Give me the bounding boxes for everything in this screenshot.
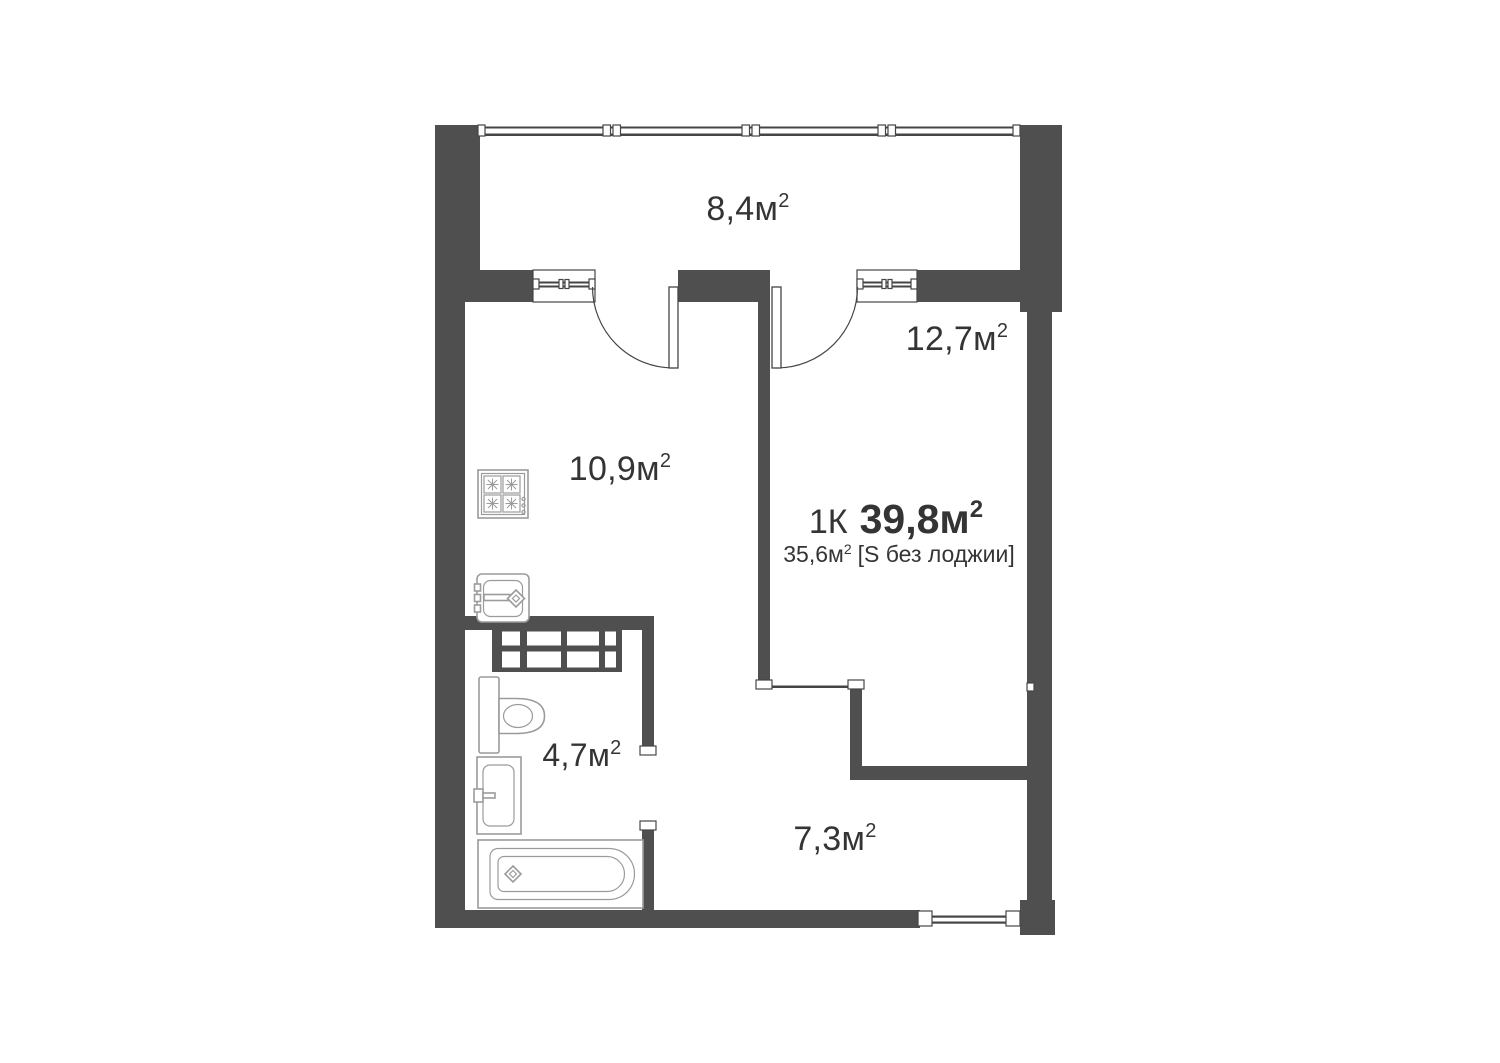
balcony-window-right: [857, 270, 917, 302]
toilet-icon: [479, 677, 545, 753]
room-label-hallway: 7,3м2: [793, 820, 876, 858]
balcony-door-left: [593, 287, 679, 368]
entrance-door: [918, 911, 1020, 926]
floor-plan-page: 8,4м2 12,7м2 10,9м2 4,7м2 7,3м2 1К39,8м2…: [0, 0, 1500, 1063]
door-swing-icon: [777, 287, 858, 368]
bathroom-door-opening: [640, 746, 656, 830]
door-swing-icon: [593, 287, 674, 368]
unit-subtitle: 35,6м2[S без лоджии]: [783, 541, 1015, 567]
vent-shaft-icon: [492, 628, 622, 672]
kitchen-sink-icon: [475, 574, 530, 622]
room-label-loggia: 8,4м2: [706, 190, 789, 228]
room-label-bathroom: 4,7м2: [542, 737, 621, 773]
bathtub-icon: [478, 840, 643, 908]
stove-icon: [478, 470, 528, 518]
hallway-passage: [756, 680, 1034, 691]
room-label-living-room: 12,7м2: [906, 320, 1009, 358]
unit-title-block: 1К39,8м2 35,6м2[S без лоджии]: [783, 496, 1015, 567]
balcony-door-right: [772, 287, 858, 368]
room-label-kitchen: 10,9м2: [569, 450, 672, 488]
unit-title: 1К39,8м2: [809, 496, 983, 542]
balcony-window-left: [533, 270, 595, 302]
floor-plan: 8,4м2 12,7м2 10,9м2 4,7м2 7,3м2 1К39,8м2…: [0, 0, 1500, 1063]
loggia-window-band: [478, 125, 1020, 136]
entrance-door-icon: [918, 911, 932, 926]
bathroom-sink-icon: [474, 757, 521, 834]
